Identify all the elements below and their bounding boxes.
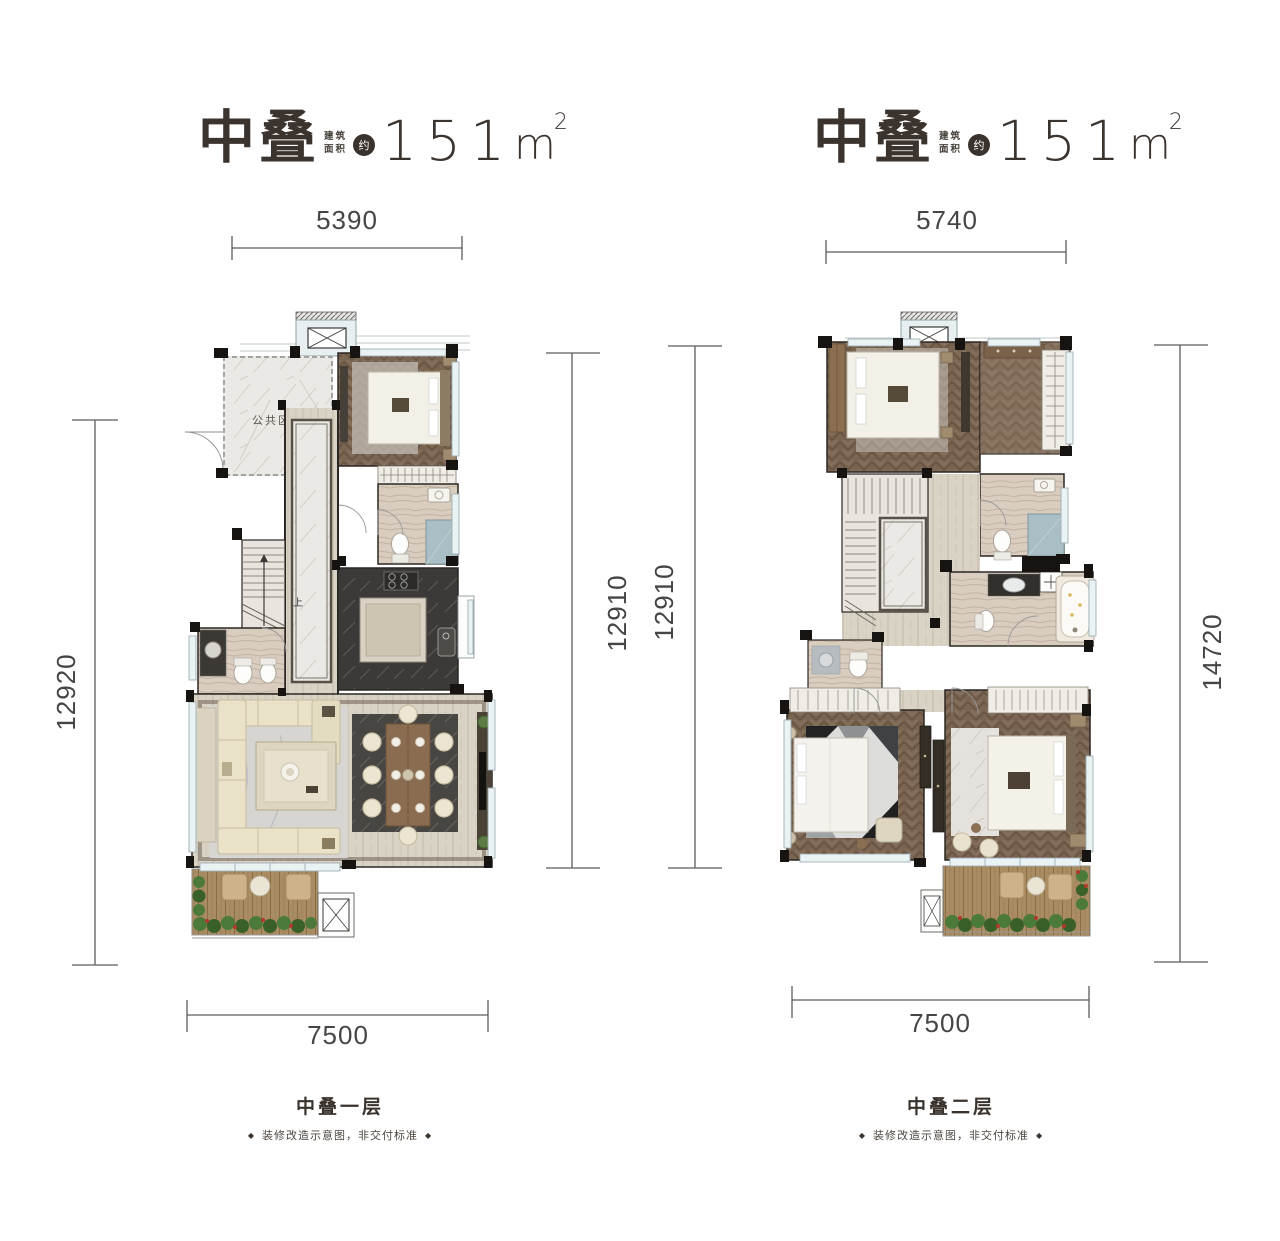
patio-chair	[222, 874, 247, 900]
floorplan-level2	[780, 312, 1096, 936]
dim-left-outer: 12920	[46, 637, 86, 747]
bathroom-2	[198, 628, 286, 694]
approx-badge: 约	[968, 134, 990, 156]
bathroom-4	[950, 572, 1094, 646]
bedroom-master-upper	[827, 342, 980, 472]
living-room	[192, 694, 492, 867]
diamond-icon: ◆	[248, 1131, 255, 1140]
area-type-label: 建筑 面积	[324, 131, 347, 156]
area-unit: m 2	[1129, 126, 1185, 165]
closet-strip	[378, 466, 456, 484]
area-value: 151	[997, 117, 1129, 165]
dim-top-right: 5740	[828, 205, 1066, 236]
dressing-room	[980, 342, 1070, 454]
diamond-icon: ◆	[1036, 1131, 1043, 1140]
bedroom-master-lower	[945, 687, 1090, 860]
kitchen	[338, 568, 458, 690]
diamond-icon: ◆	[425, 1131, 432, 1140]
bedroom-2	[784, 688, 924, 860]
floorplan-level1: 公共区域	[185, 312, 495, 938]
floorplans-canvas: 公共区域	[0, 0, 1280, 1241]
dim-top-left: 5390	[232, 205, 462, 236]
area-unit: m 2	[514, 126, 570, 165]
disclaimer: ◆ 装修改造示意图，非交付标准 ◆	[841, 1127, 1061, 1143]
plan-name: 中叠	[198, 111, 320, 165]
plan-name: 中叠	[813, 111, 935, 165]
diamond-icon: ◆	[859, 1131, 866, 1140]
toilet-room	[808, 640, 882, 690]
title-left: 中叠 建筑 面积 约 151 m 2	[198, 97, 570, 165]
approx-badge: 约	[353, 134, 375, 156]
area-type-label: 建筑 面积	[939, 131, 962, 156]
dim-right-outer: 14720	[1192, 597, 1232, 707]
balcony-2	[921, 866, 1090, 936]
stairs-up-label: 上	[293, 597, 303, 609]
balcony-1	[192, 869, 354, 938]
patio-table	[250, 876, 270, 896]
patio-chair	[1048, 874, 1072, 900]
patio-chair	[286, 874, 311, 900]
patio-chair	[1000, 872, 1024, 898]
bathroom-3	[980, 474, 1064, 560]
footer-right: 中叠二层 ◆ 装修改造示意图，非交付标准 ◆	[841, 1092, 1061, 1143]
dim-bottom-left: 7500	[238, 1020, 438, 1051]
side-console	[196, 708, 216, 842]
floor-label: 中叠一层	[230, 1092, 450, 1119]
floor-label: 中叠二层	[841, 1092, 1061, 1119]
disclaimer: ◆ 装修改造示意图，非交付标准 ◆	[230, 1127, 450, 1143]
bathroom-1	[378, 484, 458, 564]
dim-middle-right: 12910	[644, 547, 684, 657]
footer-left: 中叠一层 ◆ 装修改造示意图，非交付标准 ◆	[230, 1092, 450, 1143]
coffee-table	[256, 742, 336, 810]
area-value: 151	[382, 117, 514, 165]
dim-bottom-right: 7500	[840, 1008, 1040, 1039]
dim-middle-left: 12910	[597, 558, 637, 668]
hallway	[285, 408, 338, 694]
floorplan-page: 公共区域	[0, 0, 1280, 1241]
title-right: 中叠 建筑 面积 约 151 m 2	[813, 97, 1185, 165]
patio-table	[1027, 877, 1045, 895]
